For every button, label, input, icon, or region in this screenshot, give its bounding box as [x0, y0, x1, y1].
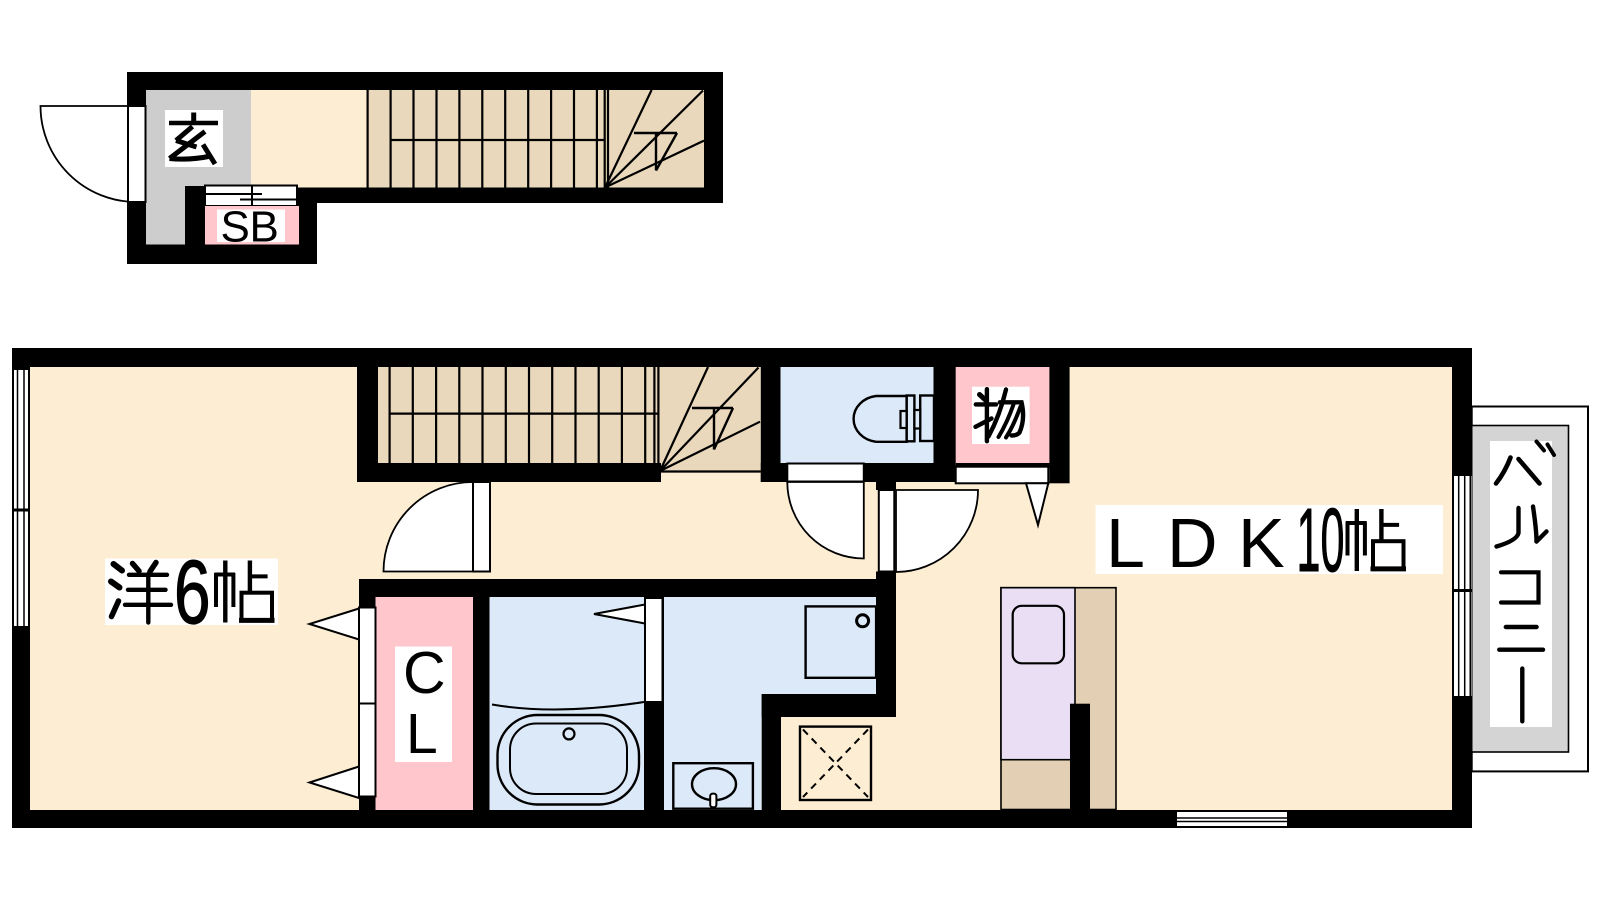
svg-text:6: 6	[174, 542, 211, 643]
svg-text:L: L	[1106, 504, 1145, 582]
svg-text:C: C	[403, 640, 446, 706]
svg-text:K: K	[1238, 504, 1285, 582]
svg-text:L: L	[406, 702, 438, 766]
svg-text:D: D	[1167, 504, 1218, 582]
svg-text:S: S	[221, 202, 250, 251]
svg-text:10: 10	[1297, 491, 1345, 591]
svg-text:B: B	[250, 202, 279, 251]
